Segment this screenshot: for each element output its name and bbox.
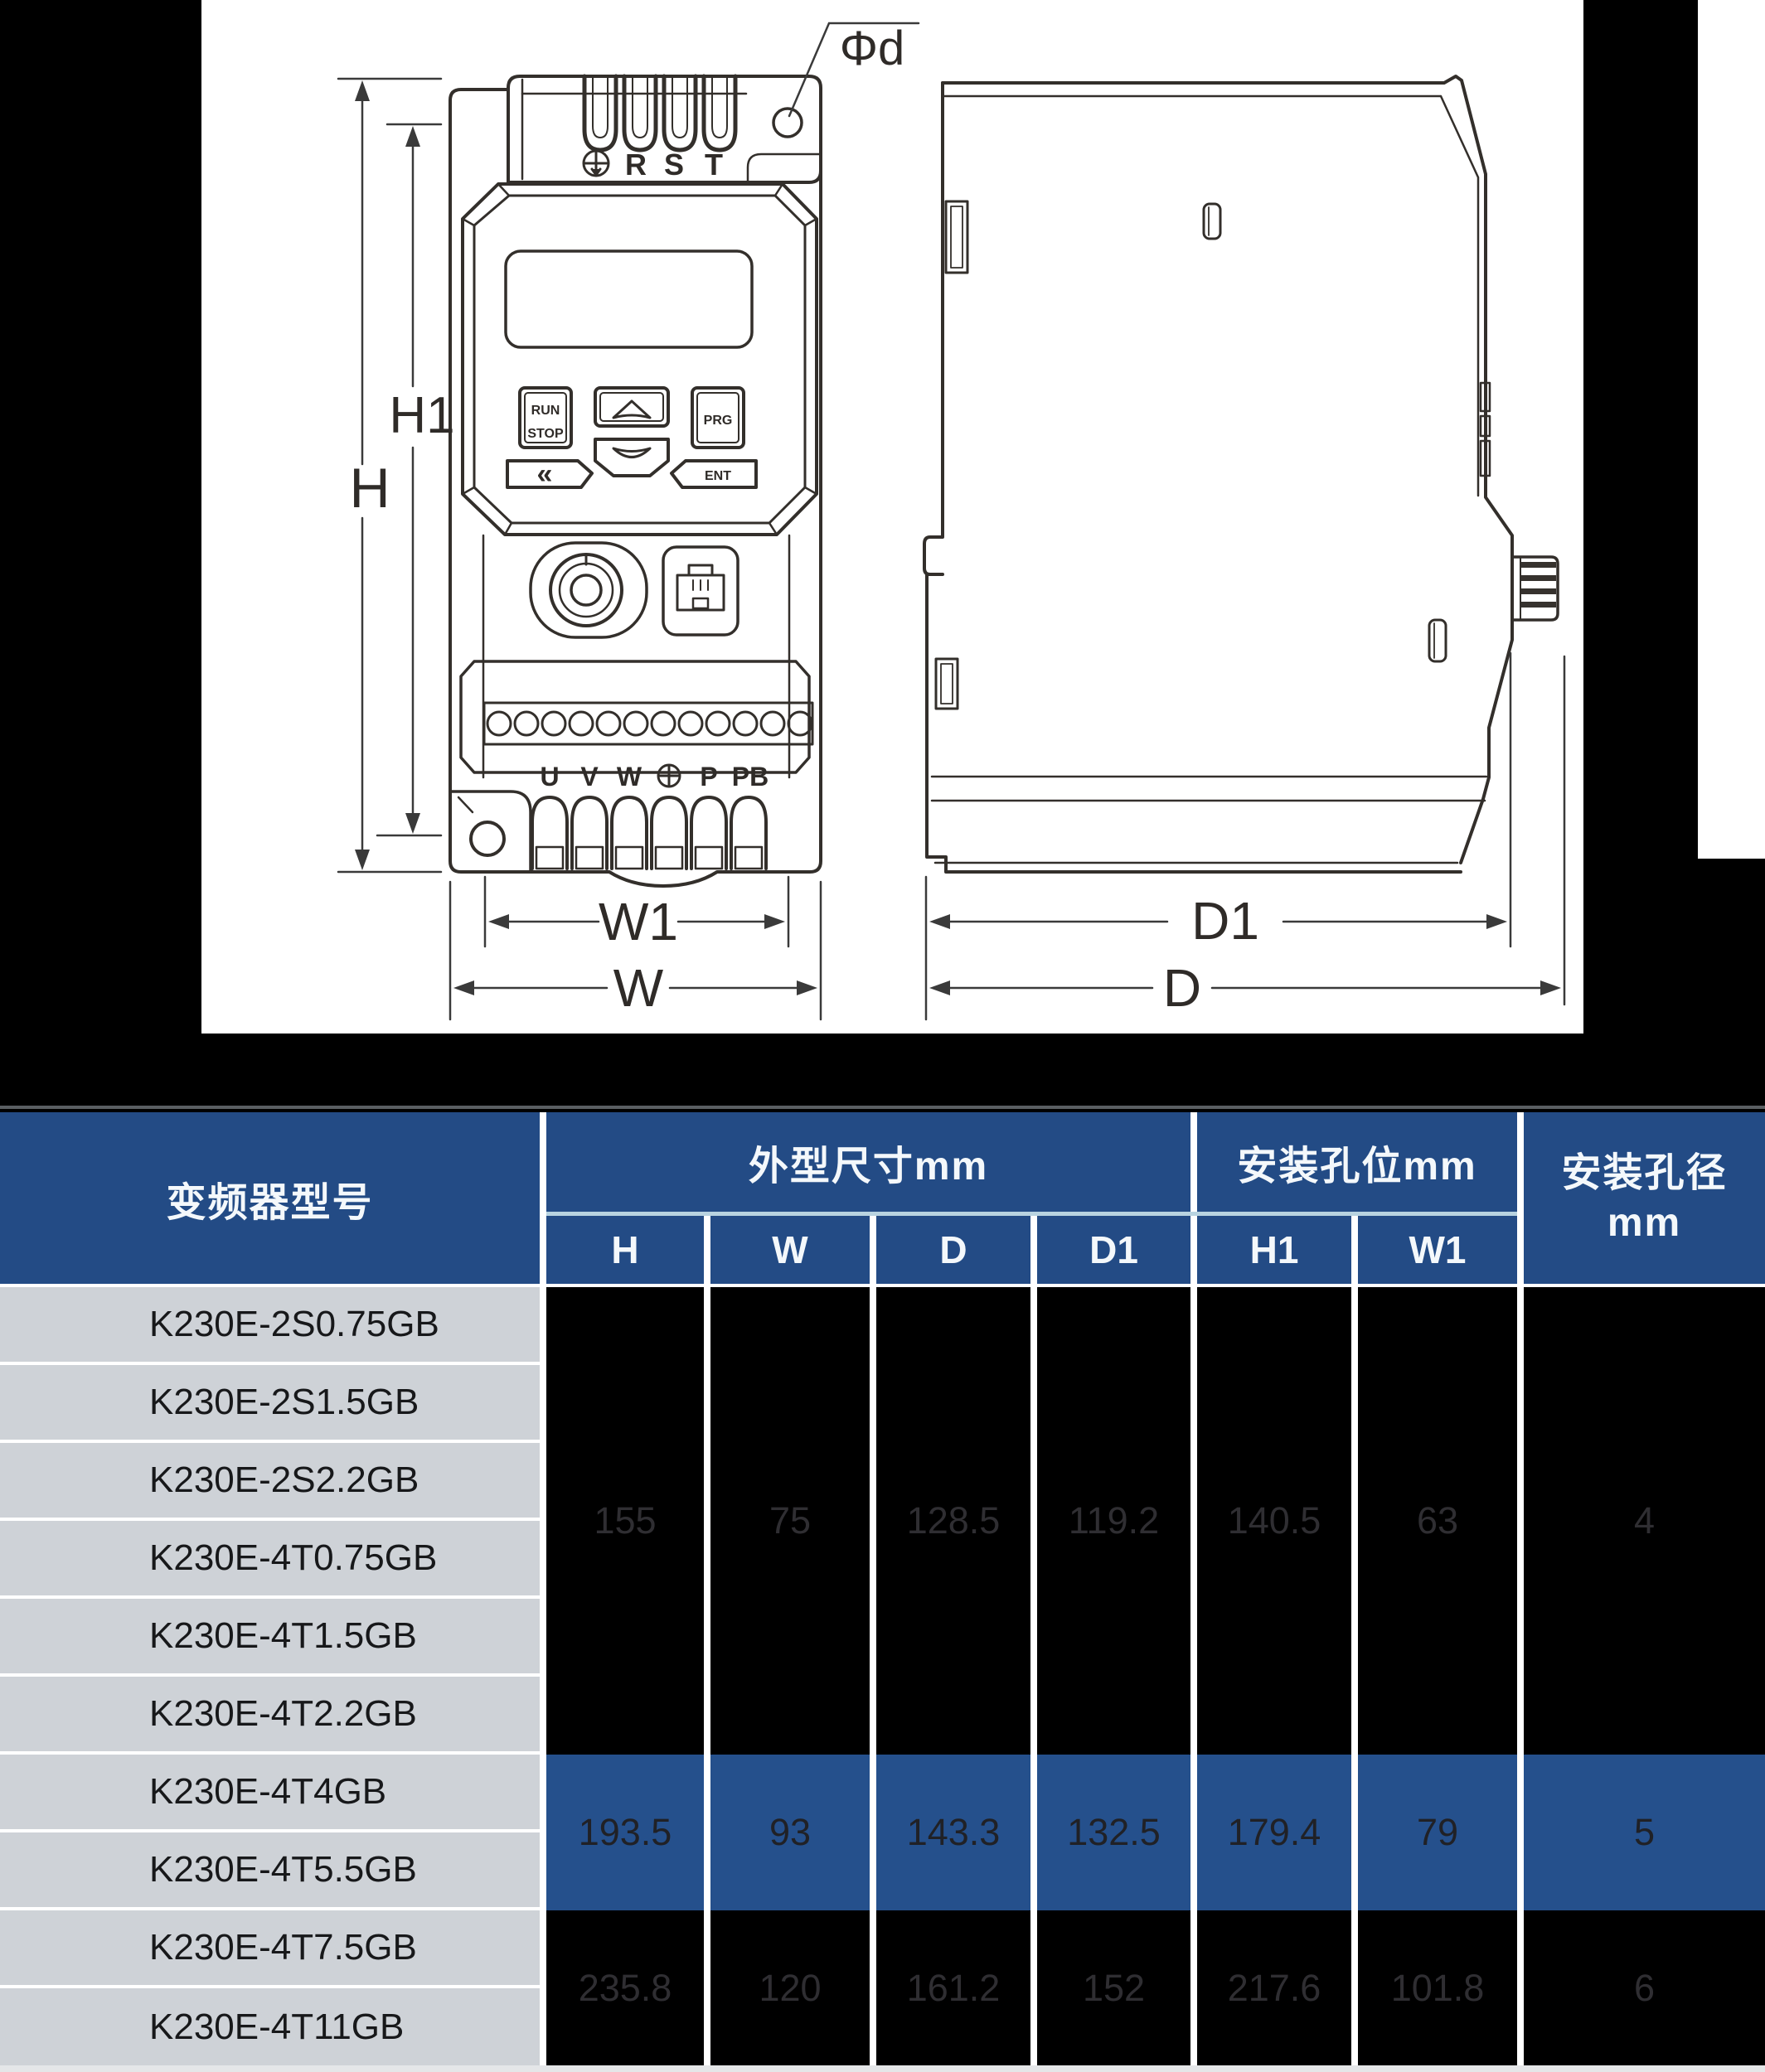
value-d1-group1: 119.2 <box>1037 1287 1190 1755</box>
hole-diameter-line1: 安装孔径 <box>1561 1149 1727 1198</box>
hole-diameter-callout: Φd <box>840 22 905 75</box>
output-label-w: W <box>617 762 642 792</box>
value-w-group2: 93 <box>710 1755 870 1910</box>
model-cell: K230E-4T4GB <box>0 1755 540 1829</box>
bottom-left-tab <box>450 792 531 872</box>
col-header-model: 变频器型号 <box>0 1112 540 1284</box>
model-cell: K230E-4T2.2GB <box>0 1677 540 1751</box>
hole-diameter-line2: mm <box>1607 1198 1681 1248</box>
output-label-p: P <box>700 762 717 792</box>
model-cell: K230E-2S1.5GB <box>0 1365 540 1440</box>
terminal-label-r: R <box>625 148 647 182</box>
side-view <box>924 76 1558 872</box>
value-h1-group1: 140.5 <box>1197 1287 1351 1755</box>
keypad-stop-label: STOP <box>527 427 564 441</box>
terminal-label-s: S <box>664 148 684 182</box>
output-terminal-arches <box>532 797 766 869</box>
value-w1-group1: 63 <box>1358 1287 1517 1755</box>
value-dia-group3: 6 <box>1524 1910 1765 2065</box>
value-d-group1: 128.5 <box>876 1287 1030 1755</box>
keypad-bezel-outer <box>463 184 817 535</box>
table-bottom-strip <box>0 2065 1765 2072</box>
dim-label-h1: H1 <box>389 387 454 444</box>
model-cell: K230E-2S0.75GB <box>0 1287 540 1362</box>
value-w-group1: 75 <box>710 1287 870 1755</box>
model-cell: K230E-4T7.5GB <box>0 1910 540 1985</box>
value-dia-group2: 5 <box>1524 1755 1765 1910</box>
model-cell: K230E-4T0.75GB <box>0 1521 540 1595</box>
datasheet-page: { "drawing": { "front": { "dim_h": "H", … <box>0 0 1765 2072</box>
dim-label-w: W <box>613 958 664 1018</box>
value-w1-group2: 79 <box>1358 1755 1517 1910</box>
sub-header-w1: W1 <box>1358 1216 1517 1284</box>
value-h-group2: 193.5 <box>546 1755 704 1910</box>
value-h1-group2: 179.4 <box>1197 1755 1351 1910</box>
value-d-group3: 161.2 <box>876 1910 1030 2065</box>
side-port-lower <box>1429 620 1446 661</box>
terminal-screws <box>487 712 812 735</box>
value-d1-group2: 132.5 <box>1037 1755 1190 1910</box>
value-h1-group3: 217.6 <box>1197 1910 1351 2065</box>
top-right-mounting-hole <box>773 109 802 137</box>
rj45-port-graphic <box>663 547 738 635</box>
potentiometer-knob-graphic <box>531 543 647 637</box>
value-h-group3: 235.8 <box>546 1910 704 2065</box>
value-w1-group3: 101.8 <box>1358 1910 1517 2065</box>
sub-header-h1: H1 <box>1197 1216 1351 1284</box>
output-label-v: V <box>580 762 599 792</box>
lcd-display-window <box>506 251 752 347</box>
model-cell: K230E-4T5.5GB <box>0 1832 540 1907</box>
model-cell: K230E-4T11GB <box>0 1988 540 2065</box>
control-terminal-band <box>461 661 809 772</box>
terminal-label-t: T <box>705 148 723 182</box>
output-label-pb: PB <box>732 762 769 792</box>
model-cell: K230E-2S2.2GB <box>0 1443 540 1518</box>
output-label-u: U <box>540 762 559 792</box>
side-slot-upper-left <box>946 201 967 273</box>
dimension-drawing: H H1 Φd W1 W D1 D R S T RUN STOP PRG « E… <box>0 0 1765 1034</box>
dim-label-d: D <box>1163 958 1201 1018</box>
table-top-divider <box>0 1106 1765 1109</box>
col-group-outline-dims: 外型尺寸mm <box>546 1112 1190 1212</box>
dim-label-h: H <box>349 457 390 520</box>
side-slot-lower-left <box>936 659 958 709</box>
keypad-prg-label: PRG <box>704 414 733 428</box>
keypad-back-label: « <box>537 458 553 490</box>
side-port-upper <box>1204 204 1220 239</box>
dim-label-d1: D1 <box>1191 891 1259 951</box>
side-knob-graphic <box>1512 557 1558 620</box>
sub-header-d1: D1 <box>1037 1216 1190 1284</box>
model-cell: K230E-4T1.5GB <box>0 1599 540 1673</box>
value-dia-group1: 4 <box>1524 1287 1765 1755</box>
bottom-left-mounting-hole <box>471 822 504 855</box>
sub-header-w: W <box>710 1216 870 1284</box>
down-arrow-icon <box>613 448 650 457</box>
col-group-mounting-holes: 安装孔位mm <box>1197 1112 1517 1212</box>
col-header-hole-diameter: 安装孔径 mm <box>1524 1112 1765 1284</box>
dim-label-w1: W1 <box>599 892 678 951</box>
keypad-ent-label: ENT <box>705 469 731 483</box>
value-h-group1: 155 <box>546 1287 704 1755</box>
spec-table: 变频器型号 外型尺寸mm 安装孔位mm 安装孔径 mm H W D D1 H1 … <box>0 1112 1765 2072</box>
value-d1-group3: 152 <box>1037 1910 1190 2065</box>
ground-icon-bottom <box>658 765 680 787</box>
value-w-group3: 120 <box>710 1910 870 2065</box>
sub-header-h: H <box>546 1216 704 1284</box>
keypad-run-label: RUN <box>531 404 560 418</box>
ground-icon-top <box>584 151 609 176</box>
up-arrow-icon <box>613 401 650 418</box>
value-d-group2: 143.3 <box>876 1755 1030 1910</box>
down-button-graphic <box>595 439 668 476</box>
up-button-graphic <box>595 388 668 426</box>
sub-header-d: D <box>876 1216 1030 1284</box>
